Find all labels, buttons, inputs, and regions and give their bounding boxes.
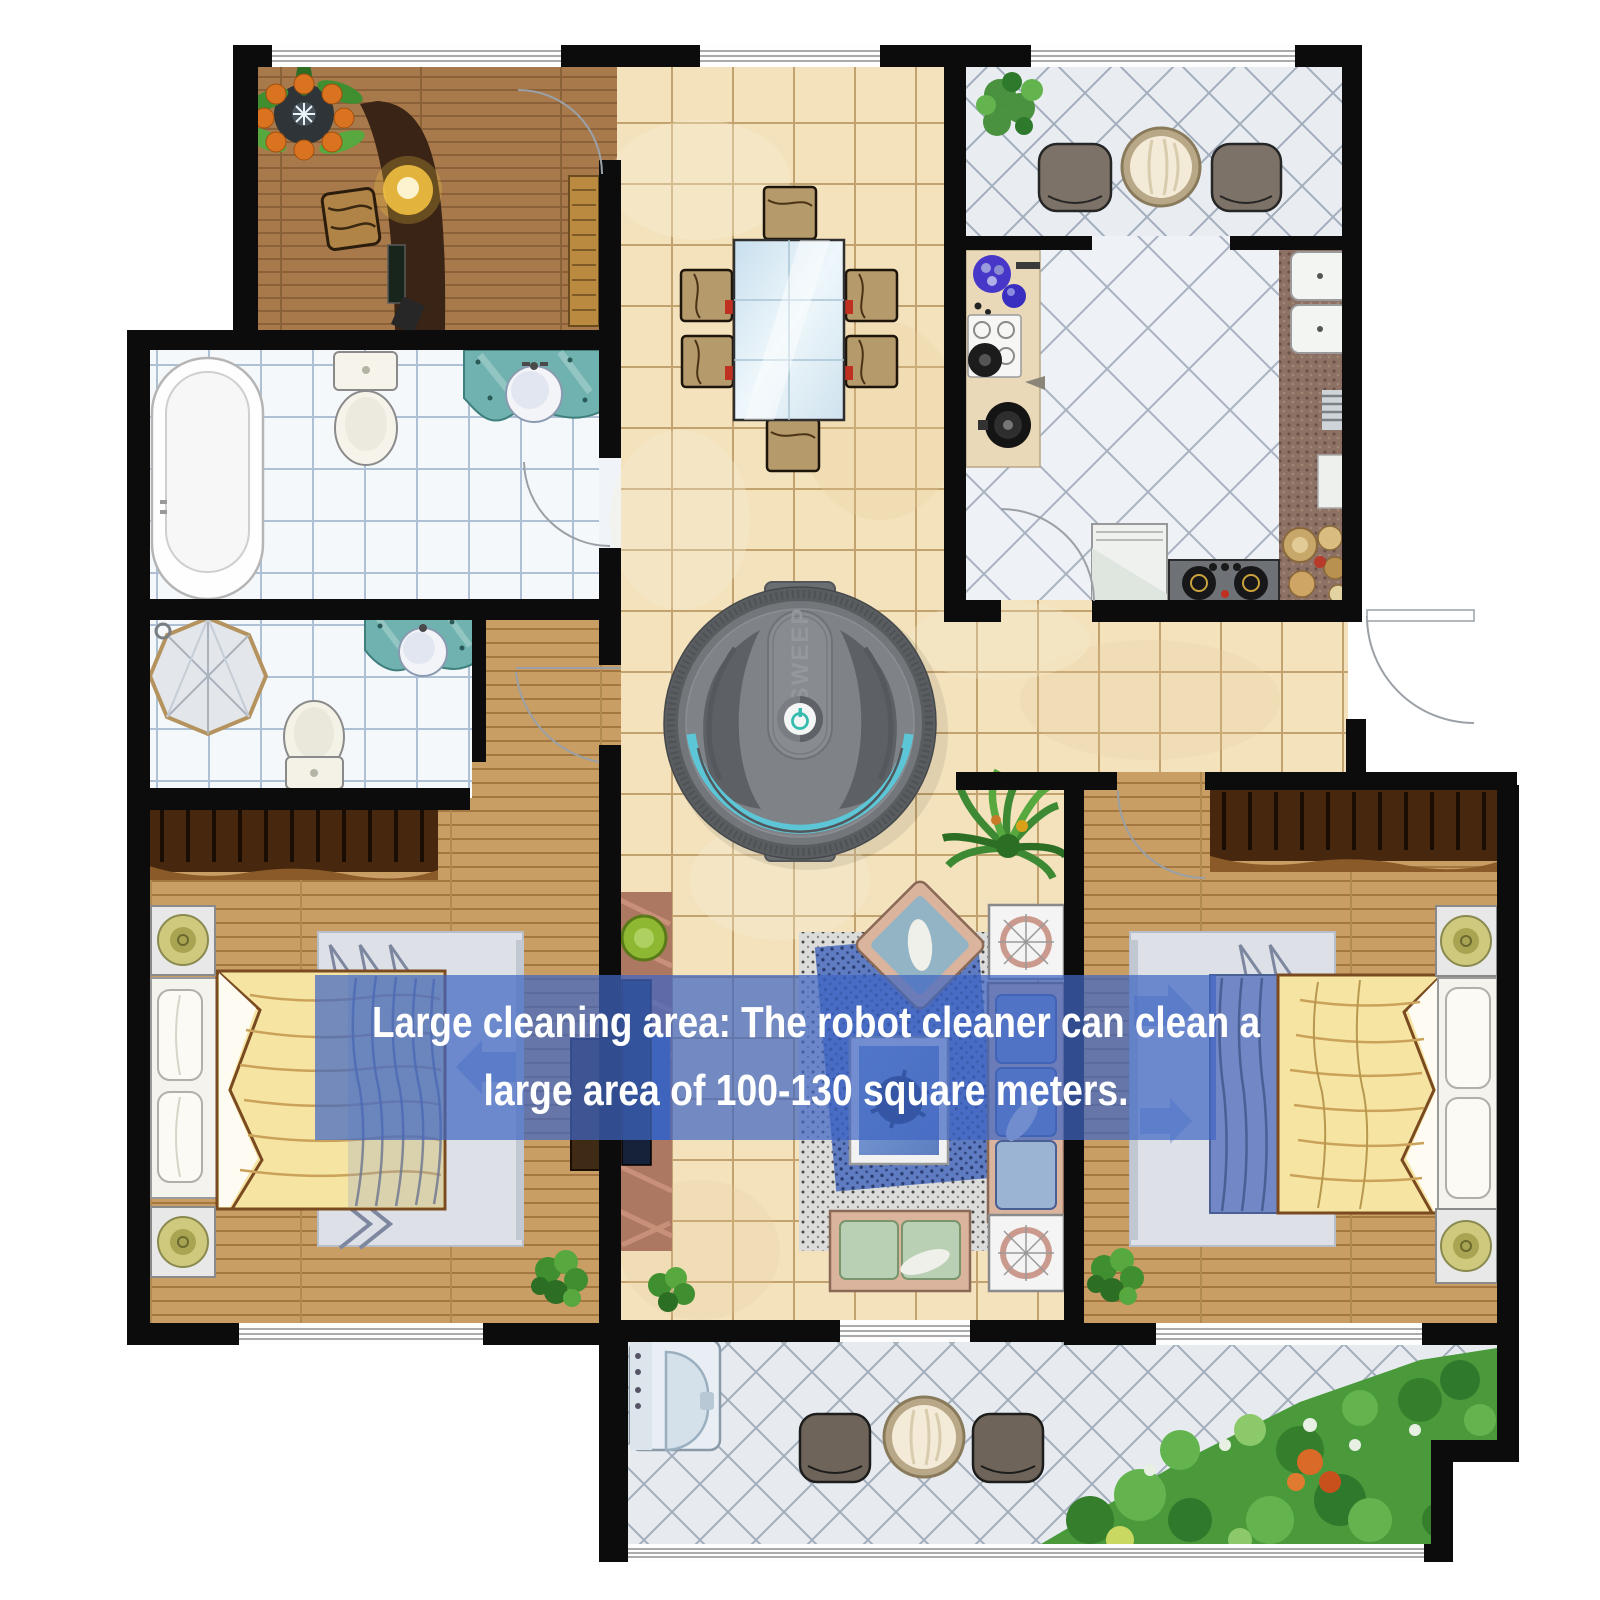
- svg-text:Large cleaning area: The robot: Large cleaning area: The robot cleaner c…: [372, 998, 1260, 1047]
- svg-text:large area of 100-130 square m: large area of 100-130 square meters.: [484, 1066, 1129, 1115]
- svg-text:SWEEP: SWEEP: [787, 607, 814, 704]
